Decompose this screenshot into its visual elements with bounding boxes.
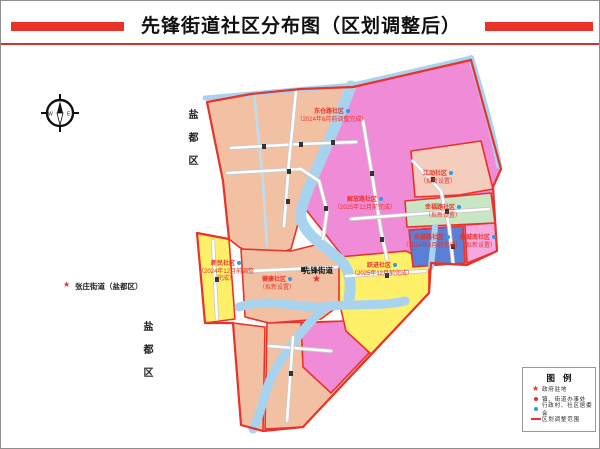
adjust-boundary-line-icon bbox=[530, 418, 542, 420]
legend-label: 区划调整范围 bbox=[542, 415, 580, 423]
community-label: 新城南社区 （拟新设置） bbox=[455, 235, 501, 250]
community-note: （2024年6月前调整完成） bbox=[284, 117, 380, 125]
community-name: 新民社区 bbox=[211, 261, 235, 267]
committee-dot-icon bbox=[492, 235, 496, 239]
street-office-dot-icon bbox=[530, 397, 542, 401]
community-name: 东仓路社区 bbox=[314, 109, 344, 115]
government-star-icon: ★ bbox=[530, 385, 542, 393]
community-label: 跃进社区 （2025年12月前完成） bbox=[349, 263, 415, 278]
community-label: 健康社区 （拟新设置） bbox=[253, 277, 301, 292]
committee-dot-icon bbox=[449, 171, 453, 175]
svg-text:E: E bbox=[67, 112, 71, 118]
community-name: 幸福路社区 bbox=[425, 205, 455, 211]
community-name: 健康社区 bbox=[262, 277, 286, 283]
community-name: 解放路社区 bbox=[347, 197, 377, 203]
compass-icon: W E bbox=[41, 94, 79, 132]
community-name: 东城路社区 bbox=[414, 235, 444, 241]
district-label-yandu-top: 盐都区 bbox=[184, 109, 199, 178]
community-note: （拟新设置） bbox=[409, 179, 467, 187]
community-note: （2025年12月前完成） bbox=[349, 271, 415, 279]
legend-row: 行政村、社区居委会 bbox=[530, 404, 595, 414]
district-map: W E bbox=[1, 1, 600, 449]
community-name: 新城南社区 bbox=[460, 235, 490, 241]
zhangzhuang-label: 张庄街道（盐都区） bbox=[75, 281, 143, 292]
community-note: （2025年12月前完成） bbox=[327, 205, 403, 213]
committee-dot-icon bbox=[457, 205, 461, 209]
community-note: （拟新设置） bbox=[411, 213, 475, 221]
committee-dot-icon bbox=[393, 263, 397, 267]
community-label: 东仓路社区 （2024年6月前调整完成） bbox=[284, 109, 380, 124]
legend-row: ★ 政府驻地 bbox=[530, 384, 595, 394]
committee-dot-icon bbox=[288, 277, 292, 281]
svg-text:W: W bbox=[48, 112, 53, 118]
committee-dot-icon bbox=[446, 235, 450, 239]
community-name: 江动社区 bbox=[423, 171, 447, 177]
community-note: （拟新设置） bbox=[455, 243, 501, 251]
zhangzhuang-star-icon: ★ bbox=[63, 280, 70, 290]
committee-dot-icon bbox=[346, 109, 350, 113]
legend-title: 图例 bbox=[523, 372, 595, 384]
map-figure-page: 先锋街道社区分布图（区划调整后） bbox=[0, 0, 600, 449]
community-label: 新民社区 （2024年12月前调整完成） bbox=[195, 261, 257, 284]
legend-label: 政府驻地 bbox=[542, 385, 567, 393]
committee-dot-icon bbox=[237, 261, 241, 265]
community-note: （2024年12月前调整完成） bbox=[195, 269, 257, 284]
legend-panel: 图例 ★ 政府驻地 镇、街道办事处 行政村、社区居委会 区划调整范围 bbox=[522, 367, 596, 432]
district-label-yandu-bottom: 盐都区 bbox=[139, 321, 154, 390]
community-label: 幸福路社区 （拟新设置） bbox=[411, 205, 475, 220]
street-office-star-icon: ★ bbox=[312, 275, 321, 285]
committee-dot-icon bbox=[379, 197, 383, 201]
village-committee-dot-icon bbox=[530, 407, 542, 411]
community-label: 江动社区 （拟新设置） bbox=[409, 171, 467, 186]
community-note: （拟新设置） bbox=[253, 285, 301, 293]
community-label: 解放路社区 （2025年12月前完成） bbox=[327, 197, 403, 212]
community-name: 跃进社区 bbox=[367, 263, 391, 269]
